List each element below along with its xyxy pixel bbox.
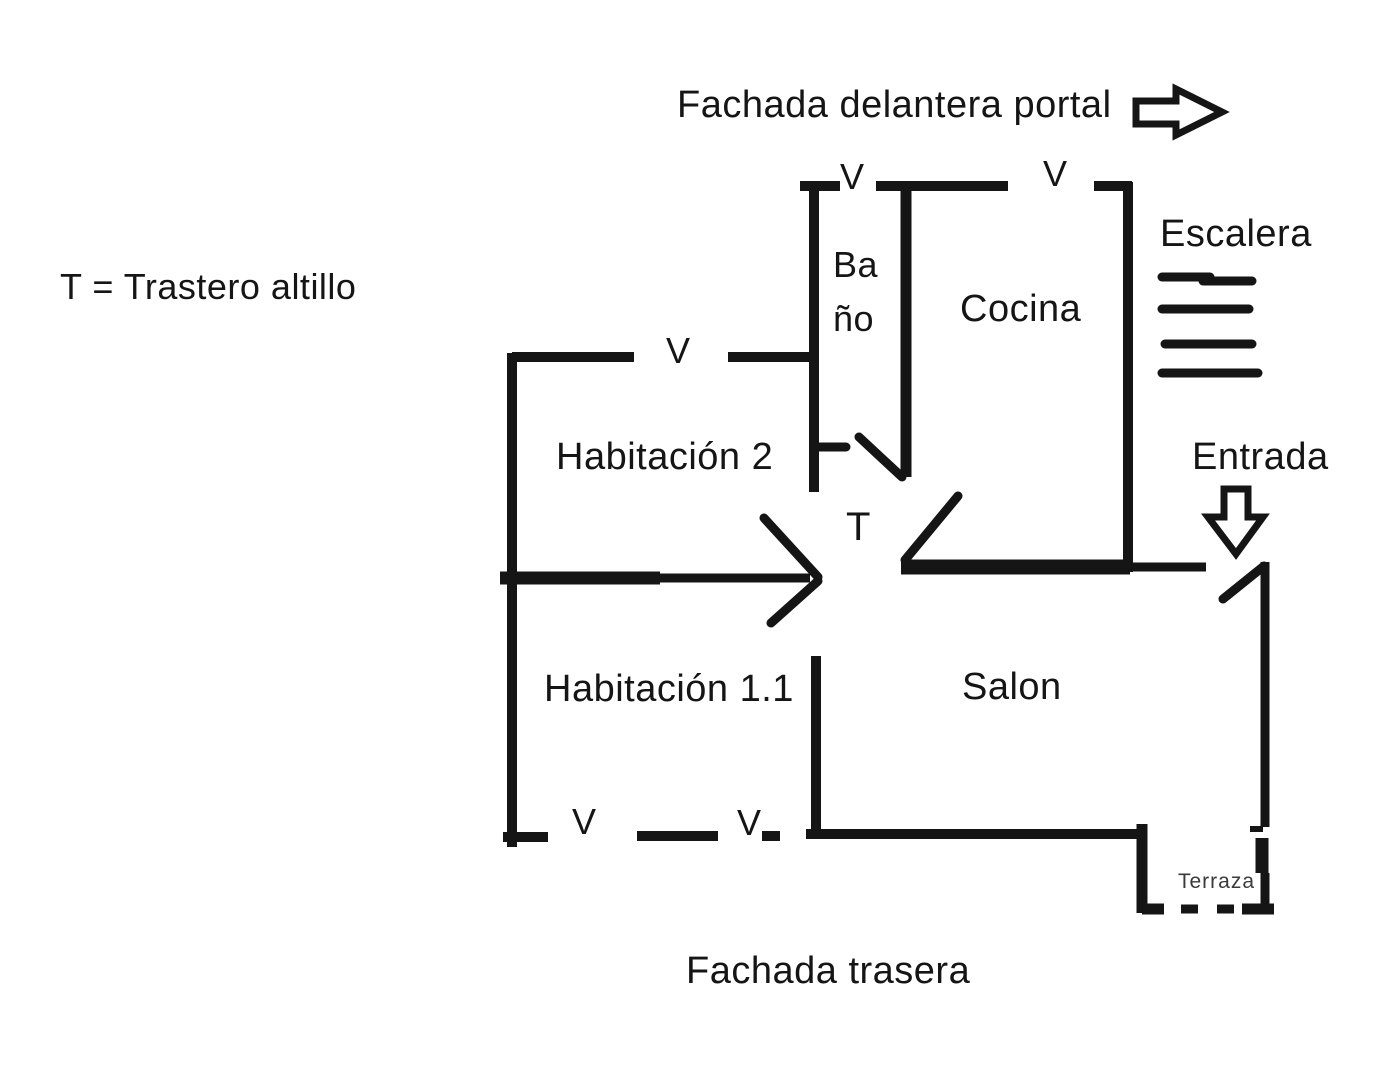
walls [500,182,1274,913]
habitacion11-label: Habitación 1.1 [544,668,794,711]
window-marker-bano-top: V [840,156,865,198]
floor-plan-canvas: Fachada delantera portal T = Trastero al… [0,0,1390,1080]
terraza-label: Terraza [1178,870,1255,894]
cocina-label: Cocina [960,288,1081,331]
entrada-down-arrow-icon [1208,489,1263,554]
front-facade-right-arrow-icon [1136,89,1222,135]
window-marker-habitacion2-top: V [666,330,691,372]
salon-label: Salon [962,666,1062,709]
bano-label-line1: Ba [833,238,878,292]
escalera-label: Escalera [1160,213,1312,256]
window-marker-cocina-top: V [1043,153,1068,195]
bano-door-swing [859,437,902,477]
floor-plan-drawing [0,0,1390,1080]
door-swings [764,437,1264,623]
rear-facade-label: Fachada trasera [686,950,970,993]
window-marker-habitacion11-right: V [737,802,762,844]
cocina-door-swing [905,496,958,560]
bano-label-line2: ño [833,292,878,346]
front-facade-label: Fachada delantera portal [677,84,1112,127]
legend-trastero-altillo: T = Trastero altillo [60,266,356,308]
entrada-label: Entrada [1192,436,1329,479]
trastero-door-swing-lower [771,581,818,623]
trastero-marker-label: T [846,505,871,550]
stairs-steps [1162,277,1258,373]
entrada-door-swing [1223,566,1264,599]
window-marker-habitacion11-left: V [572,801,597,843]
habitacion2-label: Habitación 2 [556,436,773,479]
trastero-door-swing-upper [764,518,818,577]
bano-label: Ba ño [833,238,878,346]
